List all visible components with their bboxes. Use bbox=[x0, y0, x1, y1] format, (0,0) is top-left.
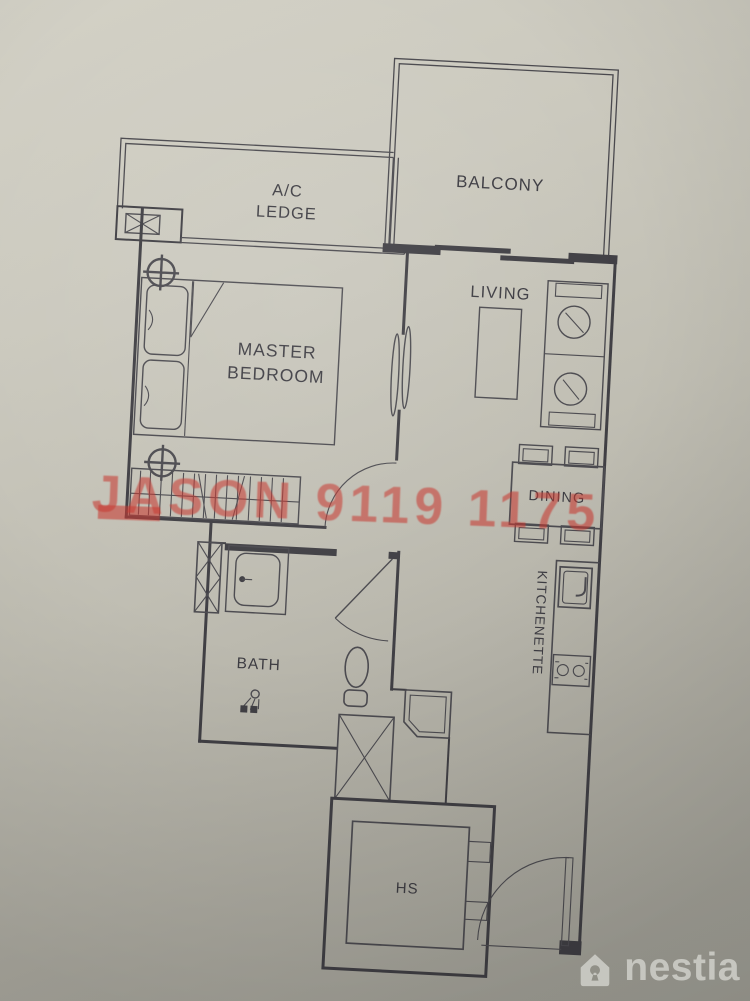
room-balcony bbox=[385, 58, 619, 258]
coffee-table bbox=[475, 307, 522, 399]
kitchen-sink bbox=[558, 567, 592, 609]
door-swing-bath bbox=[334, 556, 392, 641]
duct-shaft-symbol bbox=[335, 714, 394, 801]
appliance-box bbox=[403, 690, 451, 738]
label-kitchenette: KITCHENETTE bbox=[530, 570, 550, 675]
sliding-door-master bbox=[389, 326, 412, 417]
label-ac-ledge-line2: LEDGE bbox=[255, 202, 317, 223]
room-ac-ledge bbox=[116, 138, 399, 253]
shower-head-icon bbox=[240, 689, 259, 713]
label-ac-ledge-line1: A/C bbox=[272, 181, 303, 201]
brand-name: nestia bbox=[624, 946, 740, 990]
floorplan-photo: BALCONY A/C LEDGE MASTER BEDROOM LIVING … bbox=[0, 0, 750, 1001]
nestia-house-keyhole-icon bbox=[573, 946, 617, 990]
label-living: LIVING bbox=[470, 283, 531, 304]
vanity-basin bbox=[225, 545, 288, 614]
cooker-hob bbox=[552, 655, 591, 687]
window-strip bbox=[181, 237, 405, 254]
sliding-door-balcony bbox=[434, 245, 574, 264]
label-household-shelter: HS bbox=[395, 880, 419, 898]
label-balcony: BALCONY bbox=[456, 172, 545, 196]
label-master-bedroom-line1: MASTER bbox=[237, 339, 317, 363]
toilet bbox=[343, 647, 370, 707]
brand-watermark: nestia bbox=[573, 946, 740, 990]
label-master-bedroom-line2: BEDROOM bbox=[227, 362, 325, 387]
label-bath: BATH bbox=[236, 655, 281, 674]
sofa bbox=[541, 281, 609, 430]
